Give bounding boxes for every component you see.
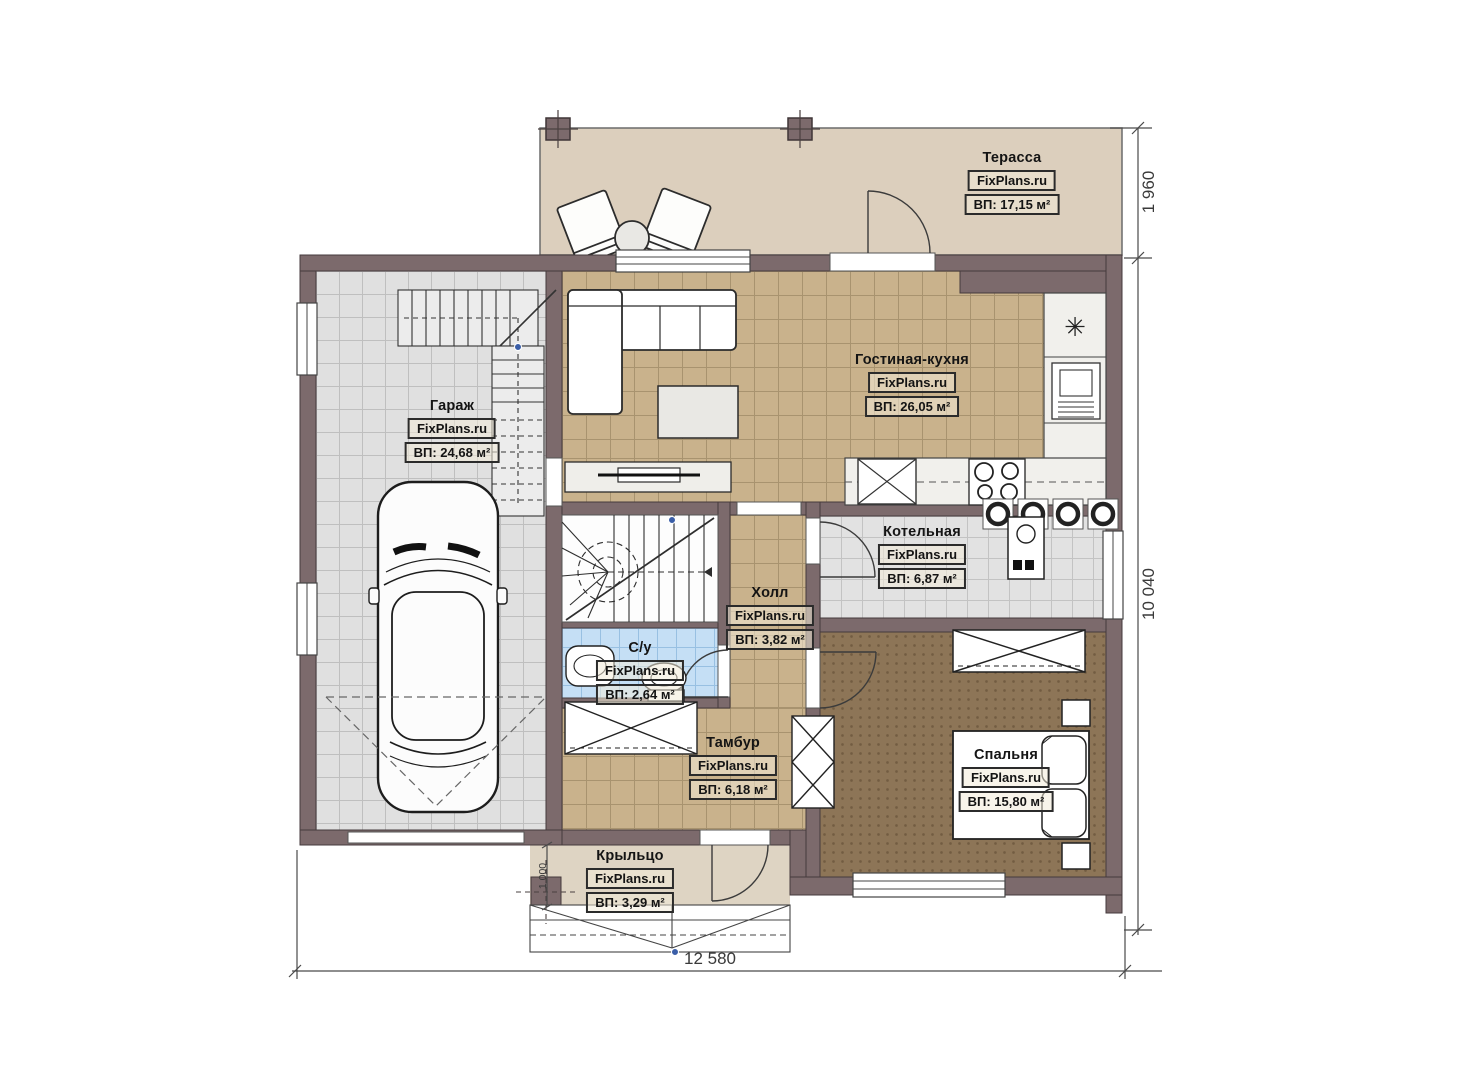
boiler-fixtures [1008,517,1044,579]
room-area: ВП: 15,80 м² [959,791,1054,812]
living-furniture [565,290,738,492]
room-name: Гостиная-кухня [855,352,969,368]
room-label-bathroom: С/у FixPlans.ru ВП: 2,64 м² [596,640,684,705]
watermark: FixPlans.ru [868,372,956,393]
watermark: FixPlans.ru [596,660,684,681]
fridge-snowflake-icon: ✳ [1060,312,1090,342]
room-name: С/у [628,640,651,656]
room-label-garage: Гараж FixPlans.ru ВП: 24,68 м² [405,398,500,463]
room-name: Крыльцо [596,848,663,864]
room-name: Спальня [974,747,1038,763]
room-label-living-kitchen: Гостиная-кухня FixPlans.ru ВП: 26,05 м² [855,352,969,417]
watermark: FixPlans.ru [878,544,966,565]
room-area: ВП: 3,29 м² [586,892,674,913]
room-label-hall: Холл FixPlans.ru ВП: 3,82 м² [726,585,814,650]
dimension-house-depth: 10 040 [1139,568,1159,620]
main-stairs [562,515,718,622]
watermark: FixPlans.ru [726,605,814,626]
watermark: FixPlans.ru [689,755,777,776]
watermark: FixPlans.ru [968,170,1056,191]
dimension-house-width: 12 580 [684,949,736,969]
room-area: ВП: 6,87 м² [878,568,966,589]
floor-plan-drawing [0,0,1473,1080]
room-name: Холл [751,585,788,601]
room-label-vestibule: Тамбур FixPlans.ru ВП: 6,18 м² [689,735,777,800]
room-name: Гараж [430,398,474,414]
floor-plan-canvas: ✳ Терасса FixPlans.ru ВП: 17,15 м² Гараж… [0,0,1473,1080]
room-name: Котельная [883,524,961,540]
room-label-boiler-room: Котельная FixPlans.ru ВП: 6,87 м² [878,524,966,589]
dimension-terrace-depth: 1 960 [1139,171,1159,214]
watermark: FixPlans.ru [962,767,1050,788]
room-area: ВП: 26,05 м² [865,396,960,417]
room-label-porch: Крыльцо FixPlans.ru ВП: 3,29 м² [586,848,674,913]
watermark: FixPlans.ru [408,418,496,439]
room-area: ВП: 2,64 м² [596,684,684,705]
car [369,482,507,812]
room-label-terrace: Терасса FixPlans.ru ВП: 17,15 м² [965,150,1060,215]
watermark: FixPlans.ru [586,868,674,889]
room-area: ВП: 24,68 м² [405,442,500,463]
room-name: Терасса [983,150,1042,166]
dimension-porch-side: 1 000 [537,863,549,889]
room-name: Тамбур [706,735,760,751]
room-label-bedroom: Спальня FixPlans.ru ВП: 15,80 м² [959,747,1054,812]
room-area: ВП: 3,82 м² [726,629,814,650]
room-area: ВП: 6,18 м² [689,779,777,800]
room-area: ВП: 17,15 м² [965,194,1060,215]
